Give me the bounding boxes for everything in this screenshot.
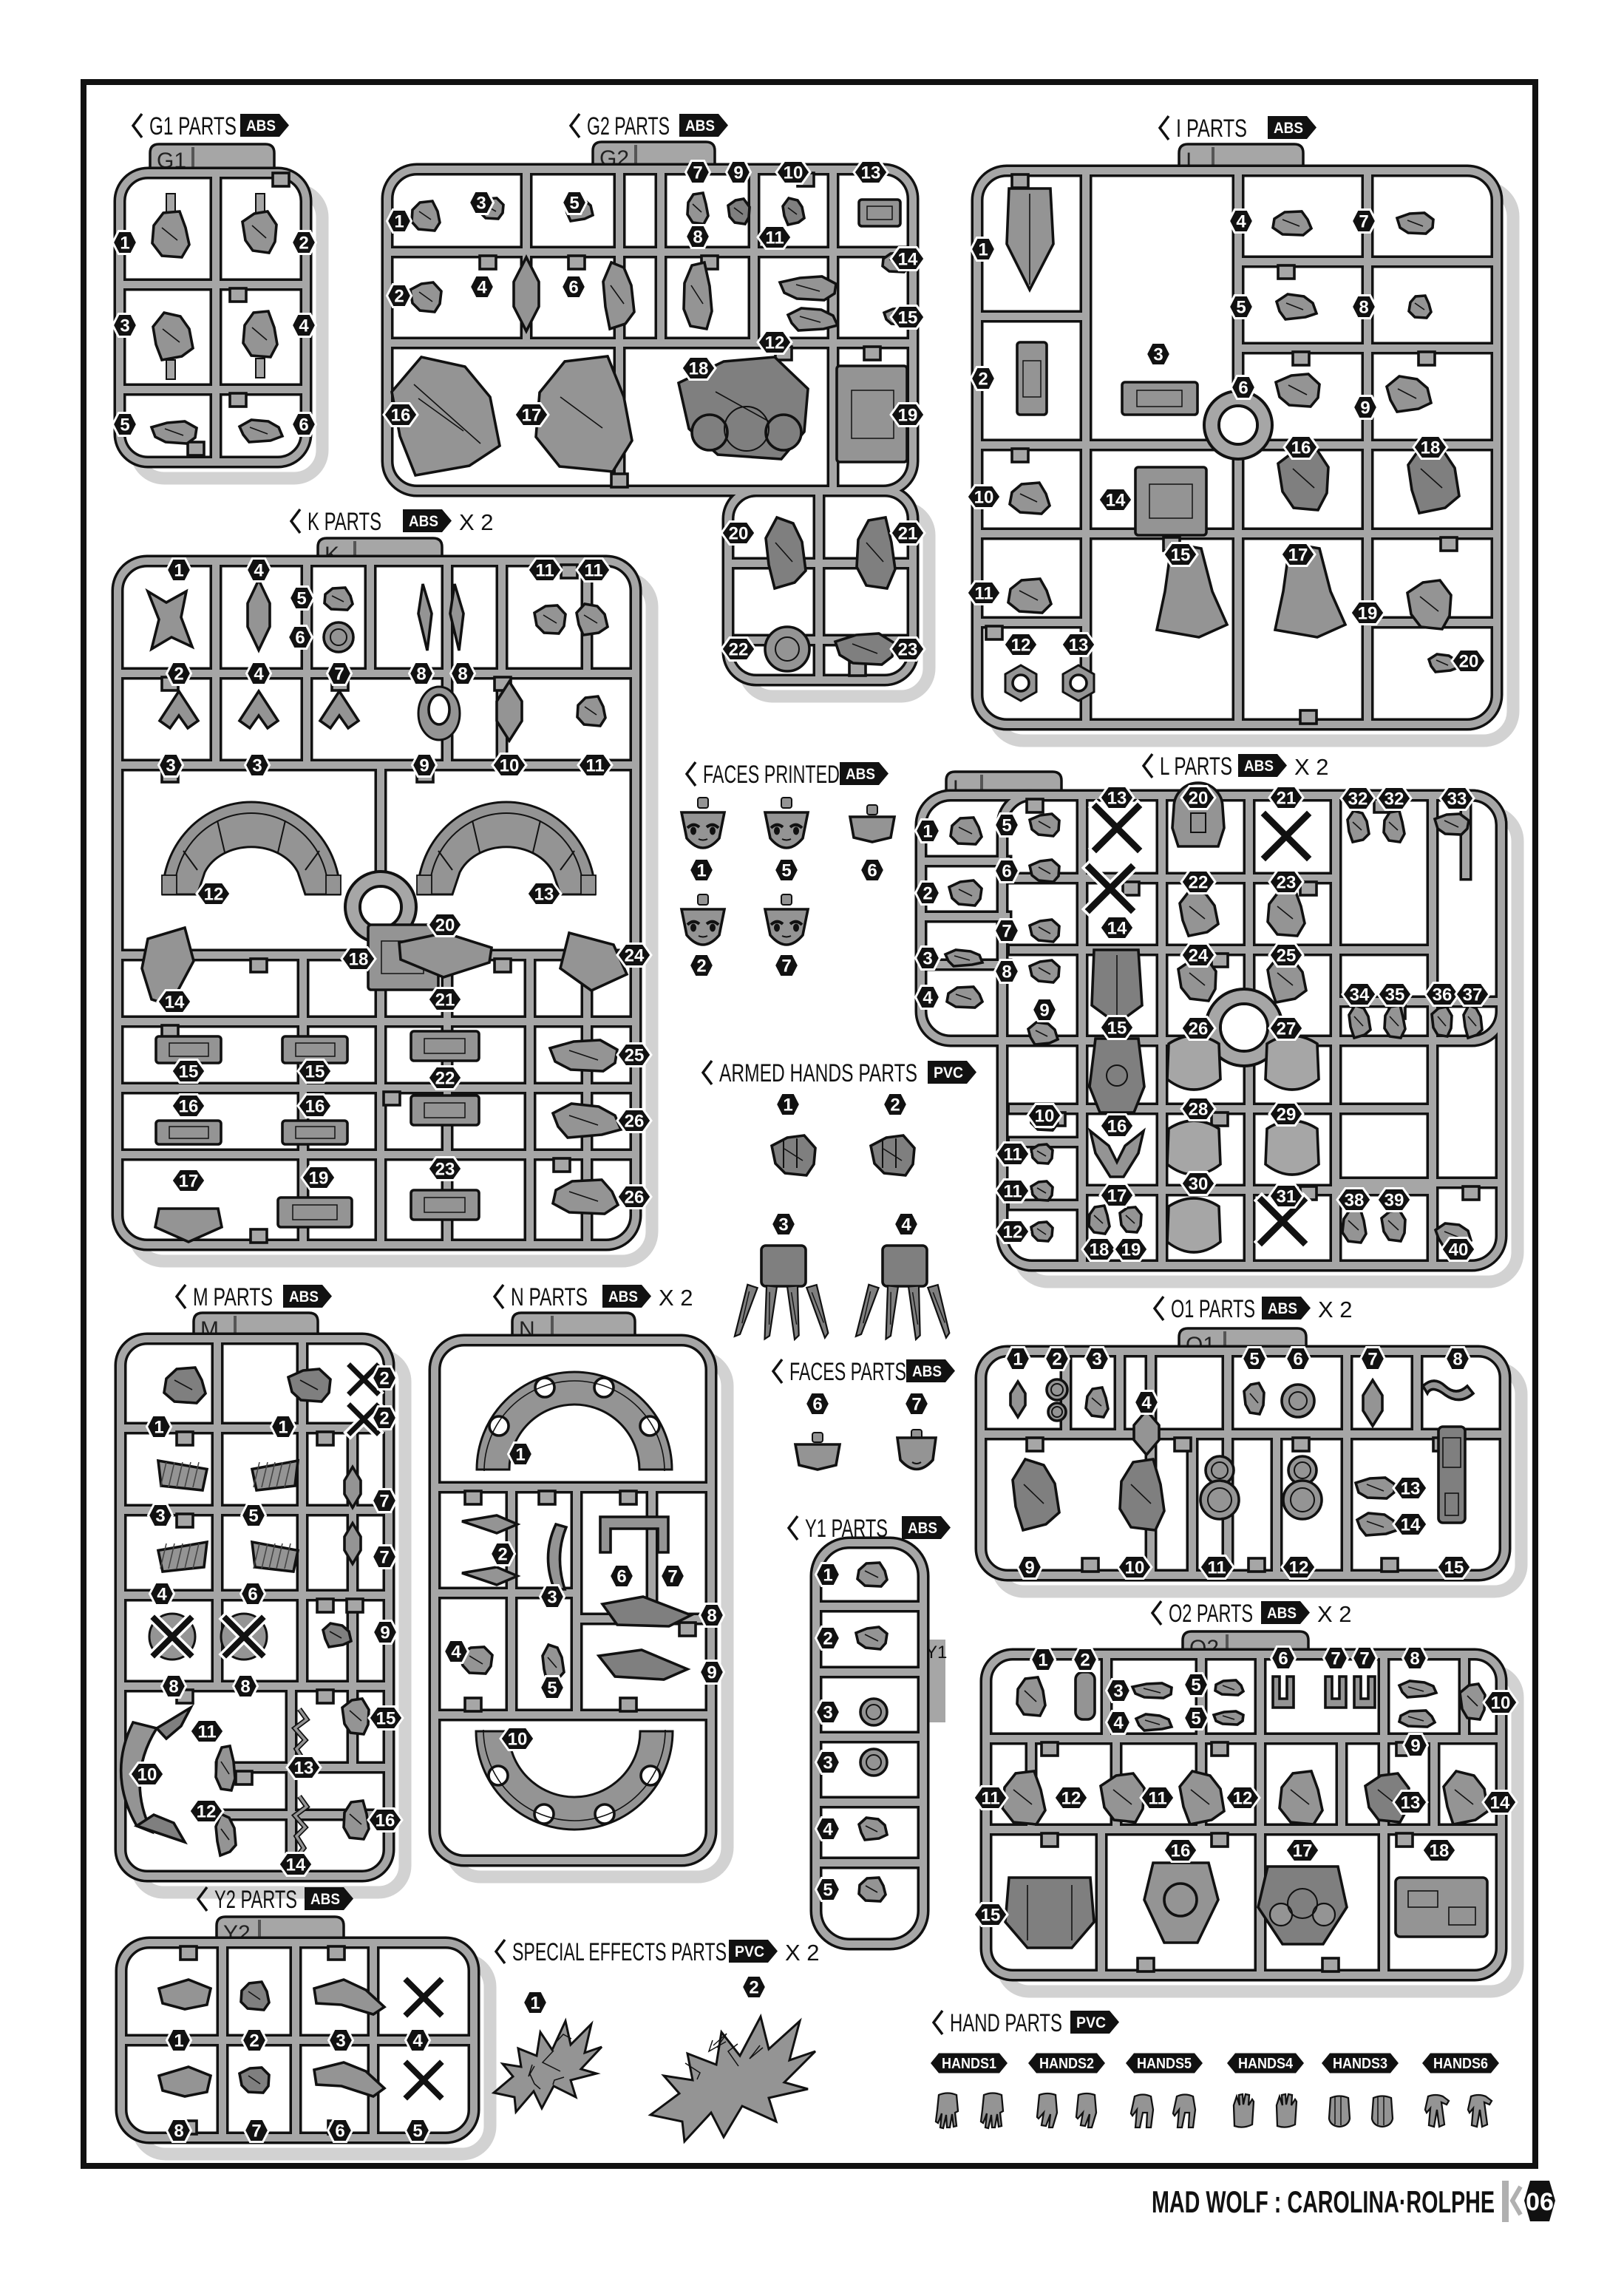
svg-text:2: 2 bbox=[696, 957, 706, 977]
svg-text:5: 5 bbox=[569, 194, 579, 214]
svg-text:3: 3 bbox=[120, 316, 129, 336]
svg-text:5: 5 bbox=[781, 861, 791, 881]
svg-text:20: 20 bbox=[1459, 652, 1479, 672]
svg-text:11: 11 bbox=[765, 228, 784, 248]
svg-text:29: 29 bbox=[1277, 1105, 1297, 1125]
svg-text:1: 1 bbox=[783, 1096, 792, 1115]
svg-text:17: 17 bbox=[179, 1172, 199, 1192]
svg-text:26: 26 bbox=[1189, 1019, 1209, 1039]
svg-text:4: 4 bbox=[412, 2031, 423, 2051]
svg-text:26: 26 bbox=[625, 1188, 645, 1208]
svg-text:6: 6 bbox=[1002, 862, 1011, 882]
svg-text:2: 2 bbox=[174, 665, 183, 685]
svg-text:33: 33 bbox=[1447, 789, 1467, 809]
svg-text:8: 8 bbox=[1002, 962, 1011, 982]
svg-text:ABS: ABS bbox=[1274, 120, 1303, 137]
svg-text:7: 7 bbox=[334, 665, 344, 685]
svg-text:2: 2 bbox=[890, 1096, 900, 1115]
svg-text:HANDS2: HANDS2 bbox=[1039, 2056, 1094, 2072]
svg-text:32: 32 bbox=[1385, 789, 1404, 809]
svg-text:2: 2 bbox=[1052, 1350, 1061, 1370]
svg-text:3: 3 bbox=[823, 1753, 832, 1773]
svg-text:11: 11 bbox=[535, 561, 554, 581]
svg-text:4: 4 bbox=[1113, 1713, 1124, 1733]
svg-text:38: 38 bbox=[1345, 1191, 1365, 1211]
svg-text:7: 7 bbox=[911, 1395, 921, 1415]
svg-text:12: 12 bbox=[204, 885, 224, 905]
svg-text:7: 7 bbox=[379, 1548, 389, 1568]
svg-text:31: 31 bbox=[1277, 1187, 1297, 1207]
svg-text:9: 9 bbox=[1410, 1736, 1420, 1756]
svg-text:35: 35 bbox=[1385, 985, 1405, 1005]
svg-text:15: 15 bbox=[376, 1709, 396, 1729]
svg-text:1: 1 bbox=[696, 861, 706, 881]
svg-text:ABS: ABS bbox=[1267, 1605, 1297, 1622]
svg-text:9: 9 bbox=[1025, 1558, 1034, 1578]
svg-text:6: 6 bbox=[812, 1395, 822, 1415]
svg-text:7: 7 bbox=[1002, 922, 1011, 942]
svg-text:19: 19 bbox=[309, 1169, 329, 1189]
svg-text:PVC: PVC bbox=[934, 1064, 963, 1081]
svg-text:5: 5 bbox=[1191, 1709, 1200, 1729]
svg-text:12: 12 bbox=[1061, 1789, 1081, 1809]
svg-text:18: 18 bbox=[1090, 1240, 1110, 1260]
svg-text:3: 3 bbox=[252, 756, 262, 776]
svg-text:3: 3 bbox=[547, 1588, 557, 1608]
svg-text:3: 3 bbox=[923, 949, 932, 969]
svg-text:27: 27 bbox=[1277, 1019, 1297, 1039]
svg-text:14: 14 bbox=[1106, 491, 1126, 511]
svg-text:FACES PRINTED: FACES PRINTED bbox=[703, 761, 840, 789]
svg-text:X 2: X 2 bbox=[1318, 1297, 1353, 1322]
svg-text:32: 32 bbox=[1348, 789, 1368, 809]
svg-text:ABS: ABS bbox=[409, 513, 438, 530]
svg-text:8: 8 bbox=[169, 1677, 178, 1697]
svg-text:2: 2 bbox=[379, 1409, 389, 1429]
svg-text:G1 PARTS: G1 PARTS bbox=[149, 112, 237, 140]
svg-text:7: 7 bbox=[781, 957, 791, 977]
svg-text:5: 5 bbox=[248, 1507, 258, 1526]
svg-text:12: 12 bbox=[197, 1802, 217, 1822]
svg-text:3: 3 bbox=[166, 756, 175, 776]
svg-text:11: 11 bbox=[584, 561, 602, 581]
svg-text:G2 PARTS: G2 PARTS bbox=[587, 112, 670, 140]
svg-text:18: 18 bbox=[349, 950, 369, 970]
svg-text:25: 25 bbox=[1277, 946, 1297, 966]
svg-text:2: 2 bbox=[379, 1369, 389, 1389]
svg-text:8: 8 bbox=[693, 228, 702, 248]
svg-text:L PARTS: L PARTS bbox=[1160, 753, 1232, 781]
svg-text:7: 7 bbox=[1368, 1350, 1377, 1370]
svg-text:4: 4 bbox=[901, 1215, 911, 1235]
svg-text:X 2: X 2 bbox=[785, 1940, 820, 1966]
svg-text:9: 9 bbox=[707, 1663, 716, 1683]
svg-text:11: 11 bbox=[974, 584, 993, 604]
svg-text:14: 14 bbox=[898, 250, 918, 270]
svg-text:2: 2 bbox=[299, 234, 308, 254]
svg-text:13: 13 bbox=[294, 1759, 314, 1779]
svg-text:19: 19 bbox=[898, 406, 918, 426]
svg-text:19: 19 bbox=[1121, 1240, 1141, 1260]
svg-text:8: 8 bbox=[707, 1606, 716, 1626]
svg-text:13: 13 bbox=[1107, 789, 1127, 809]
svg-text:20: 20 bbox=[1189, 789, 1209, 809]
svg-text:4: 4 bbox=[823, 1820, 833, 1840]
svg-text:4: 4 bbox=[923, 988, 933, 1008]
svg-text:HANDS4: HANDS4 bbox=[1238, 2056, 1294, 2072]
svg-text:26: 26 bbox=[625, 1112, 645, 1132]
svg-text:14: 14 bbox=[286, 1855, 306, 1875]
svg-text:ABS: ABS bbox=[246, 118, 276, 135]
svg-text:7: 7 bbox=[379, 1492, 389, 1512]
svg-text:12: 12 bbox=[1289, 1558, 1309, 1578]
svg-text:3: 3 bbox=[476, 194, 486, 214]
svg-text:11: 11 bbox=[981, 1789, 999, 1809]
svg-text:HAND PARTS: HAND PARTS bbox=[950, 2009, 1062, 2037]
svg-text:6: 6 bbox=[568, 278, 578, 298]
svg-text:9: 9 bbox=[419, 756, 429, 776]
svg-text:15: 15 bbox=[1107, 1019, 1127, 1039]
svg-text:20: 20 bbox=[435, 916, 455, 936]
svg-text:20: 20 bbox=[729, 524, 749, 544]
svg-text:4: 4 bbox=[451, 1643, 461, 1662]
svg-text:15: 15 bbox=[305, 1062, 325, 1082]
svg-text:4: 4 bbox=[254, 561, 264, 581]
svg-text:11: 11 bbox=[1148, 1789, 1166, 1809]
svg-text:9: 9 bbox=[380, 1623, 390, 1643]
svg-text:7: 7 bbox=[693, 163, 702, 183]
svg-text:ARMED HANDS PARTS: ARMED HANDS PARTS bbox=[719, 1059, 917, 1087]
svg-text:7: 7 bbox=[1331, 1649, 1340, 1669]
svg-text:SPECIAL EFFECTS PARTS: SPECIAL EFFECTS PARTS bbox=[512, 1938, 727, 1966]
svg-text:13: 13 bbox=[1069, 636, 1089, 656]
svg-text:FACES PARTS: FACES PARTS bbox=[789, 1358, 906, 1386]
svg-text:13: 13 bbox=[534, 885, 554, 905]
svg-text:4: 4 bbox=[157, 1585, 167, 1605]
svg-text:21: 21 bbox=[435, 991, 455, 1011]
svg-text:10: 10 bbox=[137, 1765, 157, 1785]
svg-text:17: 17 bbox=[1107, 1186, 1127, 1206]
svg-text:15: 15 bbox=[1171, 546, 1191, 565]
svg-text:6: 6 bbox=[867, 861, 877, 881]
svg-text:22: 22 bbox=[1189, 873, 1209, 893]
svg-text:8: 8 bbox=[1359, 298, 1368, 318]
svg-text:ABS: ABS bbox=[1268, 1300, 1297, 1317]
svg-text:12: 12 bbox=[765, 333, 785, 353]
svg-text:12: 12 bbox=[1233, 1789, 1253, 1809]
svg-text:18: 18 bbox=[1421, 438, 1441, 458]
svg-text:N PARTS: N PARTS bbox=[511, 1283, 588, 1311]
svg-text:8: 8 bbox=[174, 2122, 183, 2142]
svg-text:5: 5 bbox=[120, 415, 129, 435]
svg-text:3: 3 bbox=[155, 1507, 165, 1526]
svg-text:25: 25 bbox=[625, 1046, 645, 1066]
svg-text:13: 13 bbox=[1401, 1793, 1421, 1813]
svg-text:11: 11 bbox=[1003, 1145, 1022, 1165]
svg-text:1: 1 bbox=[120, 234, 129, 254]
svg-text:2: 2 bbox=[497, 1545, 507, 1565]
svg-text:14: 14 bbox=[1401, 1515, 1421, 1535]
svg-text:12: 12 bbox=[1011, 636, 1031, 656]
svg-text:17: 17 bbox=[1288, 546, 1308, 565]
svg-text:2: 2 bbox=[1080, 1651, 1090, 1671]
svg-text:10: 10 bbox=[500, 756, 520, 776]
svg-text:1: 1 bbox=[1038, 1651, 1047, 1671]
svg-text:16: 16 bbox=[391, 406, 411, 426]
svg-text:6: 6 bbox=[335, 2122, 344, 2142]
svg-text:8: 8 bbox=[1410, 1649, 1419, 1669]
svg-text:1: 1 bbox=[1013, 1350, 1022, 1370]
svg-text:11: 11 bbox=[585, 756, 604, 776]
svg-text:15: 15 bbox=[179, 1062, 199, 1082]
svg-text:X 2: X 2 bbox=[659, 1285, 693, 1311]
svg-text:13: 13 bbox=[861, 163, 881, 183]
svg-text:34: 34 bbox=[1350, 985, 1370, 1005]
svg-text:19: 19 bbox=[1358, 604, 1378, 624]
svg-text:5: 5 bbox=[1191, 1676, 1200, 1696]
svg-text:4: 4 bbox=[299, 316, 309, 336]
svg-text:ABS: ABS bbox=[289, 1288, 319, 1305]
svg-text:ABS: ABS bbox=[685, 118, 715, 135]
svg-text:1: 1 bbox=[978, 240, 988, 260]
svg-text:2: 2 bbox=[749, 1978, 758, 1998]
svg-text:6: 6 bbox=[248, 1585, 257, 1605]
svg-text:4: 4 bbox=[1141, 1393, 1152, 1413]
svg-text:28: 28 bbox=[1189, 1100, 1209, 1120]
svg-text:5: 5 bbox=[296, 589, 306, 609]
svg-text:23: 23 bbox=[1277, 873, 1297, 893]
svg-text:5: 5 bbox=[1249, 1350, 1259, 1370]
svg-text:15: 15 bbox=[981, 1906, 1001, 1926]
svg-text:ABS: ABS bbox=[908, 1520, 937, 1537]
svg-text:3: 3 bbox=[1113, 1682, 1123, 1702]
svg-text:2: 2 bbox=[978, 370, 988, 390]
svg-text:HANDS3: HANDS3 bbox=[1333, 2056, 1387, 2072]
svg-text:3: 3 bbox=[1153, 345, 1163, 365]
svg-text:16: 16 bbox=[1171, 1841, 1191, 1861]
svg-text:2: 2 bbox=[249, 2031, 259, 2051]
svg-text:3: 3 bbox=[823, 1703, 832, 1723]
svg-text:5: 5 bbox=[1002, 816, 1011, 836]
svg-text:2: 2 bbox=[923, 884, 932, 904]
svg-text:9: 9 bbox=[733, 163, 743, 183]
svg-text:17: 17 bbox=[1293, 1841, 1313, 1861]
svg-text:K PARTS: K PARTS bbox=[308, 508, 381, 536]
svg-text:10: 10 bbox=[508, 1730, 528, 1750]
svg-text:11: 11 bbox=[1207, 1558, 1226, 1578]
svg-text:X 2: X 2 bbox=[1294, 754, 1329, 780]
svg-text:ABS: ABS bbox=[1244, 758, 1274, 775]
svg-text:10: 10 bbox=[1035, 1107, 1055, 1127]
svg-text:23: 23 bbox=[898, 640, 918, 660]
svg-text:23: 23 bbox=[435, 1160, 455, 1180]
svg-text:M PARTS: M PARTS bbox=[193, 1283, 273, 1311]
svg-text:16: 16 bbox=[1107, 1117, 1127, 1137]
svg-text:6: 6 bbox=[616, 1567, 626, 1587]
svg-text:5: 5 bbox=[547, 1679, 557, 1699]
svg-text:15: 15 bbox=[898, 308, 918, 328]
svg-text:24: 24 bbox=[625, 946, 645, 966]
svg-text:24: 24 bbox=[1189, 946, 1209, 966]
svg-text:16: 16 bbox=[1291, 438, 1311, 458]
svg-text:8: 8 bbox=[240, 1677, 250, 1697]
svg-text:6: 6 bbox=[1238, 378, 1248, 398]
svg-text:21: 21 bbox=[1277, 789, 1297, 809]
svg-text:16: 16 bbox=[376, 1811, 395, 1831]
svg-text:12: 12 bbox=[1003, 1223, 1023, 1243]
svg-text:1: 1 bbox=[923, 822, 932, 842]
svg-text:6: 6 bbox=[295, 628, 305, 648]
svg-text:PVC: PVC bbox=[735, 1943, 764, 1960]
svg-text:1: 1 bbox=[823, 1566, 832, 1586]
svg-text:HANDS1: HANDS1 bbox=[942, 2056, 996, 2072]
svg-text:ABS: ABS bbox=[912, 1363, 942, 1380]
svg-text:8: 8 bbox=[1453, 1350, 1462, 1370]
svg-text:13: 13 bbox=[1401, 1479, 1421, 1499]
svg-text:10: 10 bbox=[1491, 1694, 1511, 1713]
svg-text:14: 14 bbox=[1107, 919, 1127, 939]
svg-text:14: 14 bbox=[1490, 1793, 1510, 1813]
svg-text:40: 40 bbox=[1449, 1240, 1469, 1260]
svg-text:ABS: ABS bbox=[846, 766, 875, 783]
svg-text:HANDS6: HANDS6 bbox=[1433, 2056, 1488, 2072]
svg-text:10: 10 bbox=[1125, 1558, 1145, 1578]
svg-text:1: 1 bbox=[278, 1418, 288, 1438]
svg-text:6: 6 bbox=[1293, 1350, 1302, 1370]
svg-text:11: 11 bbox=[1003, 1182, 1022, 1202]
svg-text:1: 1 bbox=[530, 1994, 540, 2014]
svg-text:9: 9 bbox=[1039, 1001, 1049, 1021]
svg-text:22: 22 bbox=[729, 640, 749, 660]
svg-text:4: 4 bbox=[1236, 212, 1246, 232]
svg-text:22: 22 bbox=[435, 1069, 455, 1089]
svg-text:HANDS5: HANDS5 bbox=[1137, 2056, 1192, 2072]
svg-text:1: 1 bbox=[174, 561, 183, 581]
svg-text:I PARTS: I PARTS bbox=[1176, 115, 1247, 143]
svg-text:1: 1 bbox=[174, 2031, 183, 2051]
svg-text:X 2: X 2 bbox=[459, 509, 494, 535]
svg-text:30: 30 bbox=[1189, 1175, 1209, 1195]
svg-text:3: 3 bbox=[778, 1215, 788, 1235]
svg-text:1: 1 bbox=[515, 1445, 525, 1465]
svg-text:ABS: ABS bbox=[608, 1288, 638, 1305]
svg-text:14: 14 bbox=[165, 993, 185, 1013]
svg-text:6: 6 bbox=[299, 415, 308, 435]
svg-text:Y2 PARTS: Y2 PARTS bbox=[214, 1886, 297, 1914]
svg-text:4: 4 bbox=[477, 278, 487, 298]
svg-text:15: 15 bbox=[1444, 1558, 1464, 1578]
svg-text:16: 16 bbox=[305, 1097, 325, 1117]
svg-text:2: 2 bbox=[394, 287, 404, 307]
svg-text:3: 3 bbox=[1092, 1350, 1101, 1370]
svg-text:21: 21 bbox=[898, 524, 918, 544]
svg-text:6: 6 bbox=[1278, 1649, 1288, 1669]
svg-text:1: 1 bbox=[154, 1418, 163, 1438]
svg-text:7: 7 bbox=[1359, 212, 1368, 232]
svg-text:5: 5 bbox=[823, 1881, 832, 1901]
svg-text:5: 5 bbox=[1236, 298, 1246, 318]
svg-text:7: 7 bbox=[667, 1567, 677, 1587]
svg-text:39: 39 bbox=[1385, 1191, 1404, 1211]
svg-text:7: 7 bbox=[1359, 1649, 1369, 1669]
svg-text:06: 06 bbox=[1526, 2188, 1554, 2216]
svg-text:17: 17 bbox=[522, 406, 542, 426]
svg-text:11: 11 bbox=[197, 1722, 216, 1742]
svg-text:9: 9 bbox=[1360, 398, 1370, 418]
svg-text:18: 18 bbox=[689, 359, 709, 379]
svg-text:PVC: PVC bbox=[1076, 2014, 1106, 2031]
svg-text:10: 10 bbox=[784, 163, 803, 183]
svg-text:7: 7 bbox=[251, 2122, 261, 2142]
svg-text:8: 8 bbox=[416, 665, 426, 685]
svg-text:16: 16 bbox=[179, 1097, 199, 1117]
svg-text:18: 18 bbox=[1430, 1841, 1450, 1861]
svg-text:1: 1 bbox=[394, 212, 404, 232]
svg-text:2: 2 bbox=[823, 1629, 832, 1649]
svg-text:4: 4 bbox=[254, 665, 264, 685]
svg-text:5: 5 bbox=[412, 2122, 422, 2142]
svg-text:X 2: X 2 bbox=[1317, 1601, 1352, 1627]
svg-text:3: 3 bbox=[336, 2031, 345, 2051]
svg-text:MAD WOLF : CAROLINA·ROLPHE: MAD WOLF : CAROLINA·ROLPHE bbox=[1152, 2184, 1495, 2219]
svg-text:10: 10 bbox=[974, 488, 994, 508]
svg-text:8: 8 bbox=[458, 665, 467, 685]
svg-text:O2 PARTS: O2 PARTS bbox=[1169, 1600, 1253, 1628]
svg-text:36: 36 bbox=[1433, 985, 1453, 1005]
svg-text:37: 37 bbox=[1463, 985, 1483, 1005]
svg-text:O1 PARTS: O1 PARTS bbox=[1171, 1295, 1255, 1323]
svg-text:ABS: ABS bbox=[310, 1891, 340, 1908]
